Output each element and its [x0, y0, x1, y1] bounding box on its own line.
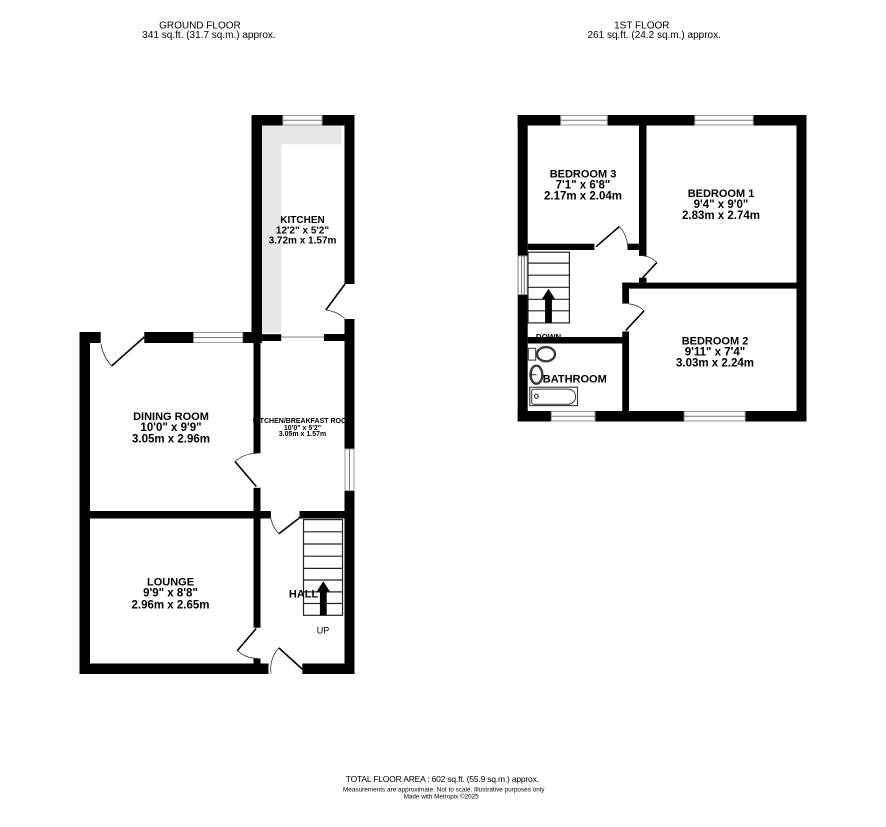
svg-text:Measurements are approximate.: Measurements are approximate. Not to sca…: [343, 786, 545, 793]
svg-text:3.03m x 2.24m: 3.03m x 2.24m: [676, 358, 754, 370]
svg-text:TOTAL FLOOR AREA : 602 sq.ft.: TOTAL FLOOR AREA : 602 sq.ft. (55.9 sq.m…: [346, 774, 539, 784]
svg-text:2.83m x 2.74m: 2.83m x 2.74m: [682, 210, 760, 222]
svg-text:Made with Metropix ©2025: Made with Metropix ©2025: [404, 793, 479, 801]
svg-text:HALL: HALL: [289, 588, 319, 600]
svg-text:261 sq.ft. (24.2 sq.m.) approx: 261 sq.ft. (24.2 sq.m.) approx.: [587, 30, 720, 41]
svg-text:3.72m x 1.57m: 3.72m x 1.57m: [269, 236, 337, 247]
svg-text:BATHROOM: BATHROOM: [543, 373, 607, 385]
svg-text:DINING ROOM: DINING ROOM: [133, 411, 209, 423]
svg-text:10'0" x 9'9": 10'0" x 9'9": [140, 422, 201, 434]
svg-text:2.96m x 2.65m: 2.96m x 2.65m: [131, 599, 209, 611]
svg-text:3.05m x 2.96m: 3.05m x 2.96m: [132, 434, 210, 446]
svg-text:3.05m x 1.57m: 3.05m x 1.57m: [279, 431, 326, 438]
svg-text:UP: UP: [317, 625, 330, 635]
svg-text:9'9" x 8'8": 9'9" x 8'8": [143, 588, 198, 600]
svg-text:341 sq.ft. (31.7 sq.m.) approx: 341 sq.ft. (31.7 sq.m.) approx.: [142, 30, 275, 41]
svg-text:2.17m x 2.04m: 2.17m x 2.04m: [544, 190, 622, 202]
